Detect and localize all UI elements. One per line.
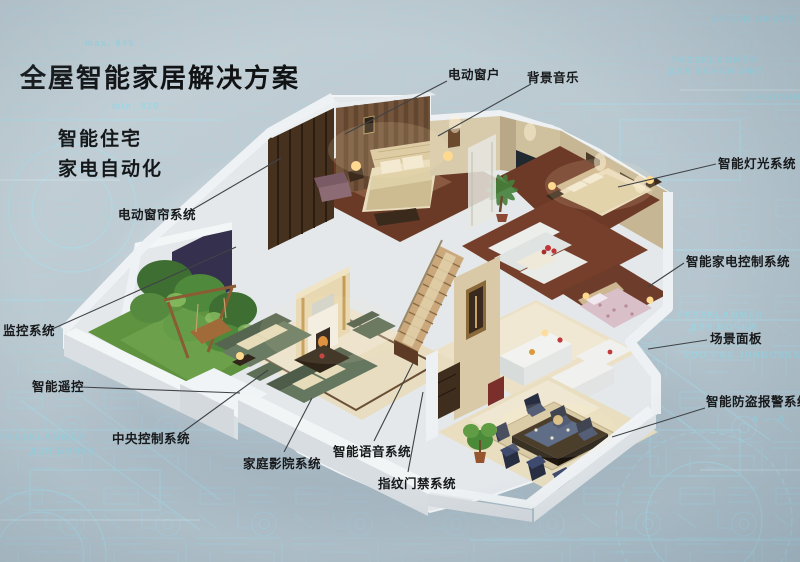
callout-label-electric-window: 电动窗户: [448, 64, 500, 83]
callout-label-smart-appliance-control-system: 智能家电控制系统: [686, 251, 790, 270]
callout-line-monitoring-system: [50, 247, 236, 330]
callout-line-smart-remote-control: [80, 387, 240, 393]
callout-label-central-control-system: 中央控制系统: [112, 428, 190, 447]
callout-label-smart-remote-control: 智能遥控: [32, 376, 84, 395]
page-title: 全屋智能家居解决方案: [20, 58, 300, 95]
callout-line-home-theater-system: [284, 398, 312, 452]
callout-label-anti-theft-alarm-system: 智能防盗报警系统: [706, 391, 800, 410]
smart-home-solution-poster: max. 845min. 820БОЧКИ ЭЖОЛЯFASSKLAMMERДЛ…: [0, 0, 800, 562]
callout-line-scene-panel: [648, 340, 707, 349]
callout-label-background-music: 背景音乐: [527, 67, 579, 86]
callout-line-smart-voice-system: [374, 363, 413, 441]
callout-line-background-music: [438, 84, 531, 136]
callout-label-scene-panel: 场景面板: [710, 328, 762, 347]
callout-line-anti-theft-alarm-system: [612, 408, 705, 437]
callout-label-home-theater-system: 家庭影院系统: [243, 453, 321, 472]
callout-line-fingerprint-access-system: [408, 392, 423, 472]
subtitle-home-automation: 家电自动化: [58, 154, 163, 181]
title-block: 全屋智能家居解决方案: [20, 58, 300, 95]
callout-label-monitoring-system: 监控系统: [3, 320, 55, 339]
callout-label-electric-curtain-system: 电动窗帘系统: [118, 204, 196, 223]
callout-label-smart-lighting-system: 智能灯光系统: [718, 153, 796, 172]
callout-label-fingerprint-access-system: 指纹门禁系统: [378, 473, 456, 492]
callout-label-smart-voice-system: 智能语音系统: [333, 441, 411, 460]
callout-line-central-control-system: [180, 370, 268, 434]
callout-line-electric-curtain-system: [190, 158, 281, 211]
callout-line-smart-lighting-system: [618, 164, 716, 187]
callout-line-smart-appliance-control-system: [648, 263, 684, 287]
subtitle-smart-residence: 智能住宅: [58, 124, 142, 151]
callout-line-electric-window: [345, 81, 447, 134]
